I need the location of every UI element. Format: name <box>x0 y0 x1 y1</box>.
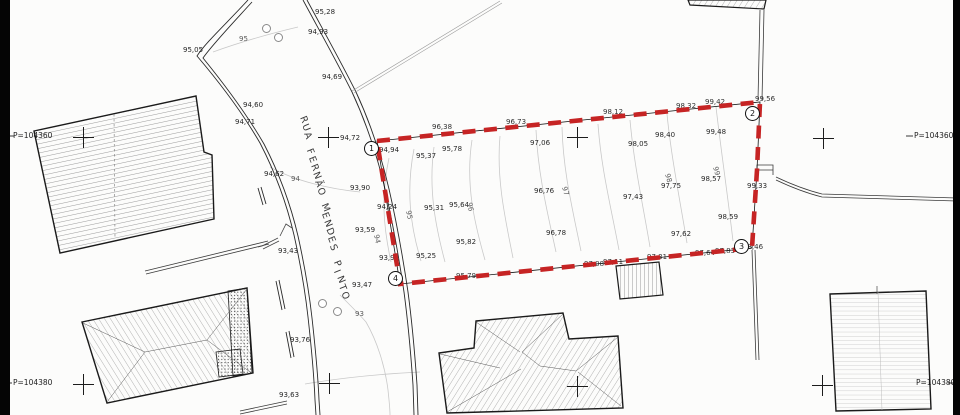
grid-cross <box>73 127 94 148</box>
grid-cross <box>812 375 833 396</box>
grid-cross <box>567 376 588 397</box>
vertex-marker: 1 <box>364 141 379 156</box>
tree-marker <box>333 307 342 316</box>
grid-cross <box>813 128 834 149</box>
site-plan: 95,0595,2894,9394,6994,6094,7194,6294,72… <box>0 0 960 415</box>
grid-cross <box>319 373 340 394</box>
tree-marker <box>318 299 327 308</box>
frame-bar-left <box>0 0 10 415</box>
tree-marker <box>262 24 271 33</box>
vertex-marker: 2 <box>745 106 760 121</box>
grid-cross <box>73 374 94 395</box>
frame-bar-right <box>953 0 960 415</box>
vertex-marker: 4 <box>388 271 403 286</box>
markers-layer: 1234 <box>0 0 960 415</box>
grid-cross <box>567 127 588 148</box>
tree-marker <box>274 33 283 42</box>
vertex-marker: 3 <box>734 239 749 254</box>
grid-cross <box>318 127 339 148</box>
